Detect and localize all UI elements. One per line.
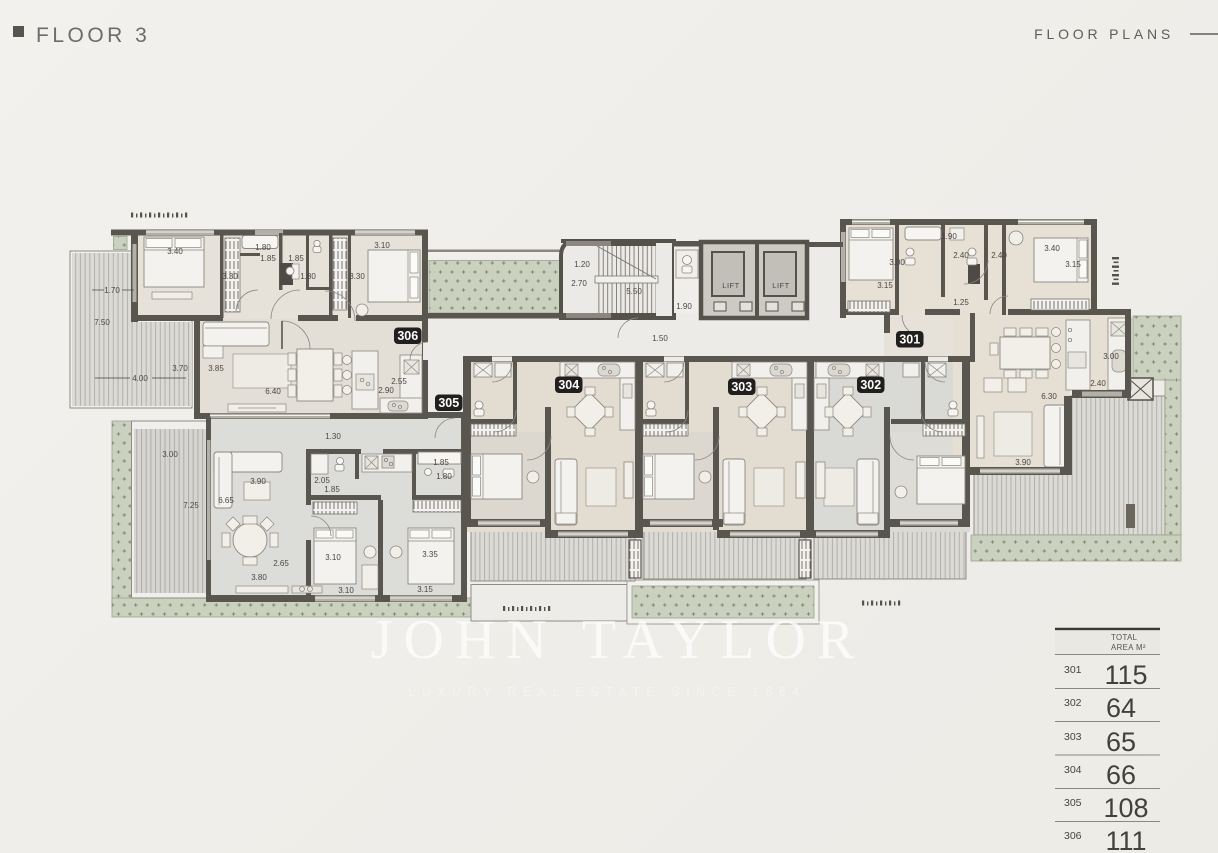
svg-text:1.80: 1.80 <box>300 272 316 281</box>
svg-text:1.25: 1.25 <box>953 298 969 307</box>
svg-text:1.90: 1.90 <box>676 302 692 311</box>
svg-text:3.10: 3.10 <box>374 241 390 250</box>
svg-text:6.30: 6.30 <box>1041 392 1057 401</box>
svg-text:306: 306 <box>397 329 418 343</box>
svg-text:AREA M²: AREA M² <box>1111 643 1146 652</box>
svg-text:3.90: 3.90 <box>1015 458 1031 467</box>
svg-text:2.05: 2.05 <box>314 476 330 485</box>
svg-text:3.80: 3.80 <box>251 573 267 582</box>
svg-text:JOHN TAYLOR: JOHN TAYLOR <box>371 609 866 671</box>
svg-text:301: 301 <box>899 333 920 347</box>
svg-text:66: 66 <box>1106 760 1136 790</box>
svg-text:TOTAL: TOTAL <box>1111 633 1138 642</box>
svg-text:1.20: 1.20 <box>574 260 590 269</box>
svg-text:302: 302 <box>1064 697 1082 709</box>
svg-text:1.85: 1.85 <box>288 254 304 263</box>
svg-text:3.40: 3.40 <box>1044 244 1060 253</box>
svg-text:3.30: 3.30 <box>222 272 238 281</box>
svg-text:1.80: 1.80 <box>255 243 271 252</box>
svg-text:7.25: 7.25 <box>183 501 199 510</box>
svg-text:1.50: 1.50 <box>652 334 668 343</box>
svg-text:303: 303 <box>731 380 752 394</box>
svg-text:6.40: 6.40 <box>265 387 281 396</box>
svg-text:3.00: 3.00 <box>889 258 905 267</box>
svg-text:2.90: 2.90 <box>378 386 394 395</box>
svg-text:2.70: 2.70 <box>571 279 587 288</box>
svg-text:302: 302 <box>860 378 881 392</box>
svg-text:LUXURY REAL ESTATE SINCE 1864: LUXURY REAL ESTATE SINCE 1864 <box>408 685 806 699</box>
svg-text:2.40: 2.40 <box>953 251 969 260</box>
svg-text:LIFT: LIFT <box>772 281 789 290</box>
svg-text:64: 64 <box>1106 693 1136 723</box>
svg-text:4.00: 4.00 <box>132 374 148 383</box>
svg-text:5.50: 5.50 <box>626 287 642 296</box>
svg-text:1.85: 1.85 <box>260 254 276 263</box>
svg-text:2.55: 2.55 <box>391 377 407 386</box>
svg-text:FLOOR PLANS: FLOOR PLANS <box>1034 26 1174 42</box>
svg-text:1.70: 1.70 <box>104 286 120 295</box>
svg-text:3.15: 3.15 <box>1065 260 1081 269</box>
svg-text:FLOOR 3: FLOOR 3 <box>36 24 150 47</box>
svg-text:305: 305 <box>438 396 459 410</box>
svg-text:3.35: 3.35 <box>422 550 438 559</box>
svg-text:2.40: 2.40 <box>991 251 1007 260</box>
svg-text:3.00: 3.00 <box>162 450 178 459</box>
svg-text:1.30: 1.30 <box>325 432 341 441</box>
svg-text:65: 65 <box>1106 727 1136 757</box>
svg-text:3.15: 3.15 <box>417 585 433 594</box>
svg-text:301: 301 <box>1064 664 1082 676</box>
svg-text:3.15: 3.15 <box>877 281 893 290</box>
svg-text:6.65: 6.65 <box>218 496 234 505</box>
svg-text:1.80: 1.80 <box>436 472 452 481</box>
svg-text:303: 303 <box>1064 731 1082 743</box>
svg-text:111: 111 <box>1105 826 1146 853</box>
svg-text:LIFT: LIFT <box>722 281 739 290</box>
svg-text:115: 115 <box>1104 660 1147 690</box>
svg-text:3.40: 3.40 <box>167 247 183 256</box>
svg-text:3.10: 3.10 <box>338 586 354 595</box>
svg-text:2.40: 2.40 <box>1090 379 1106 388</box>
svg-text:3.85: 3.85 <box>208 364 224 373</box>
svg-text:304: 304 <box>1064 764 1082 776</box>
svg-text:1.85: 1.85 <box>324 485 340 494</box>
svg-text:3.10: 3.10 <box>325 553 341 562</box>
svg-text:3.30: 3.30 <box>349 272 365 281</box>
svg-text:2.65: 2.65 <box>273 559 289 568</box>
svg-text:1.85: 1.85 <box>433 458 449 467</box>
svg-text:7.50: 7.50 <box>94 318 110 327</box>
svg-text:3.90: 3.90 <box>250 477 266 486</box>
svg-text:1.90: 1.90 <box>941 232 957 241</box>
svg-text:306: 306 <box>1064 830 1082 842</box>
svg-text:108: 108 <box>1103 793 1148 823</box>
svg-text:305: 305 <box>1064 797 1082 809</box>
svg-text:304: 304 <box>558 378 579 392</box>
svg-text:3.00: 3.00 <box>1103 352 1119 361</box>
svg-text:3.70: 3.70 <box>172 364 188 373</box>
